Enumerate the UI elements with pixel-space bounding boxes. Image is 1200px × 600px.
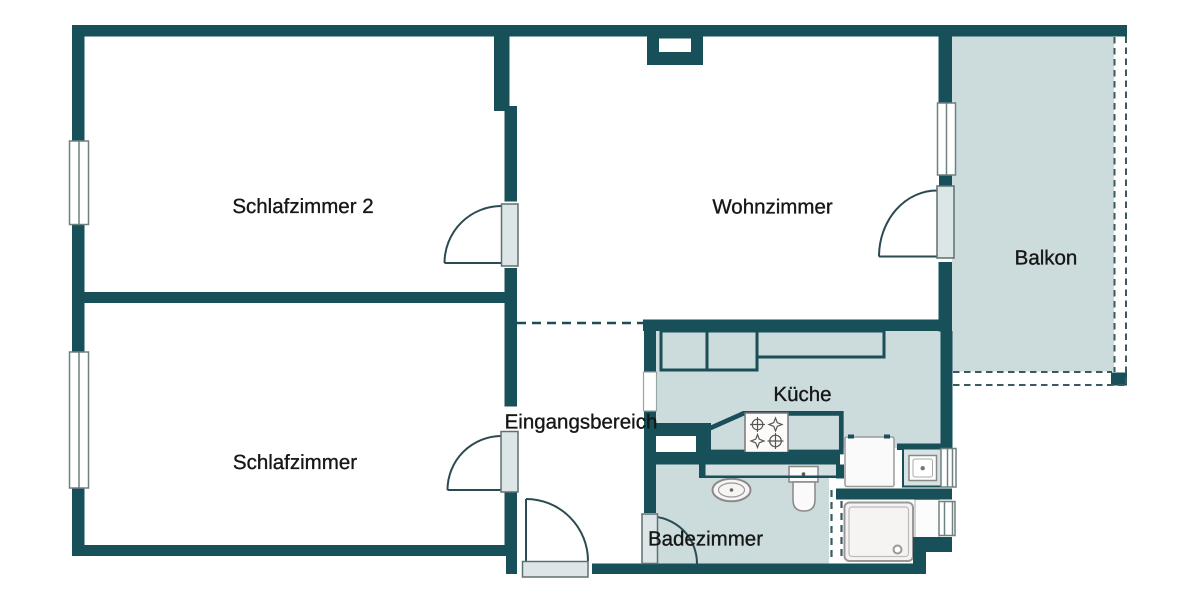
svg-text:Eingangsbereich: Eingangsbereich: [505, 411, 658, 434]
svg-text:Badezimmer: Badezimmer: [648, 528, 763, 551]
svg-text:Wohnzimmer: Wohnzimmer: [712, 196, 833, 219]
svg-text:Schlafzimmer: Schlafzimmer: [233, 451, 357, 474]
svg-text:Balkon: Balkon: [1015, 247, 1078, 270]
svg-text:Schlafzimmer 2: Schlafzimmer 2: [232, 195, 373, 218]
svg-text:Küche: Küche: [773, 383, 831, 406]
